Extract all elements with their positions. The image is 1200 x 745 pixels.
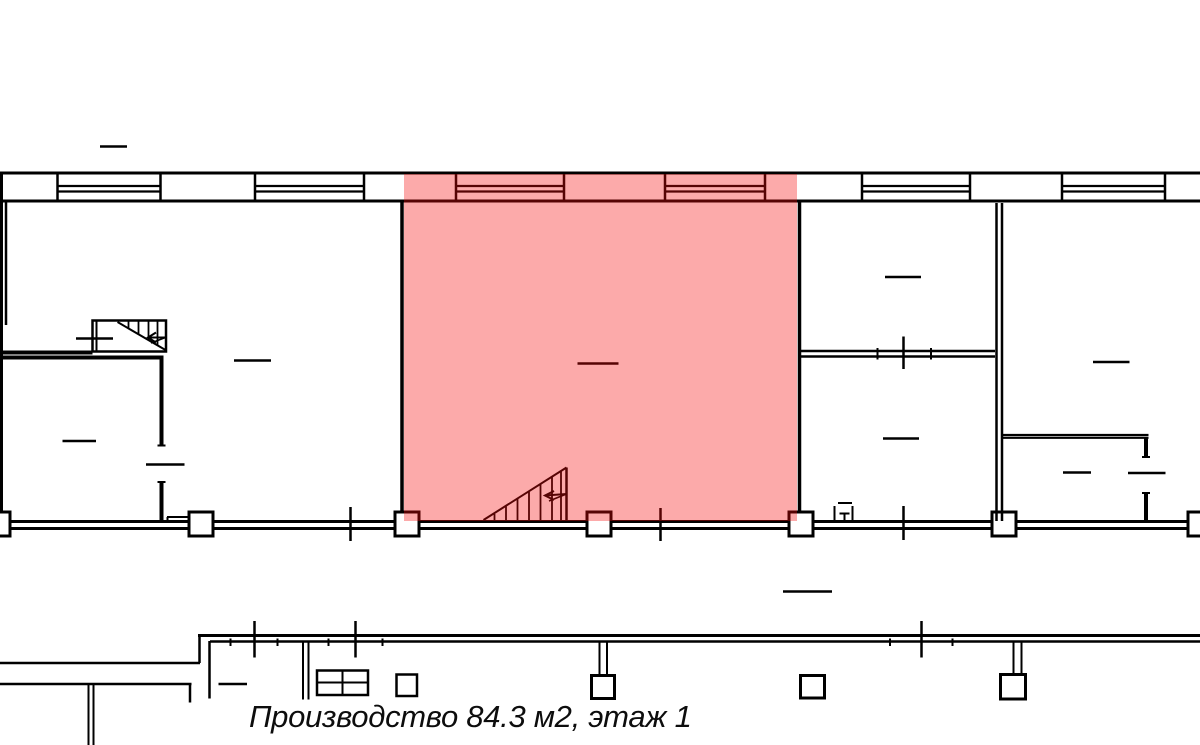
window-1 [58, 173, 161, 201]
column-with-stem [592, 643, 615, 699]
right-section [801, 203, 1166, 522]
left-block [0, 321, 271, 522]
wall-divider-right [997, 203, 1003, 521]
room-small-right [1002, 435, 1166, 522]
plan-caption: Производство 84.3 м2, этаж 1 [249, 699, 692, 735]
window-6 [1062, 173, 1165, 201]
column-with-stem [1001, 643, 1026, 700]
window-2 [255, 173, 364, 201]
window-grid [317, 671, 368, 696]
window-5 [862, 173, 970, 201]
column-pillar [1188, 512, 1200, 536]
plumbing-fixture [835, 503, 853, 521]
floorplan-image: Производство 84.3 м2, этаж 1 [0, 0, 1200, 745]
staircase-upper [76, 321, 166, 352]
column-pillar [0, 512, 10, 536]
column [801, 676, 825, 699]
room-lower-left [0, 358, 185, 522]
column [397, 675, 418, 697]
column-pillar [189, 512, 213, 536]
wall-r1-r2 [801, 337, 995, 370]
floorplan-drawing [0, 0, 1200, 745]
highlighted-room-overlay [404, 174, 797, 521]
